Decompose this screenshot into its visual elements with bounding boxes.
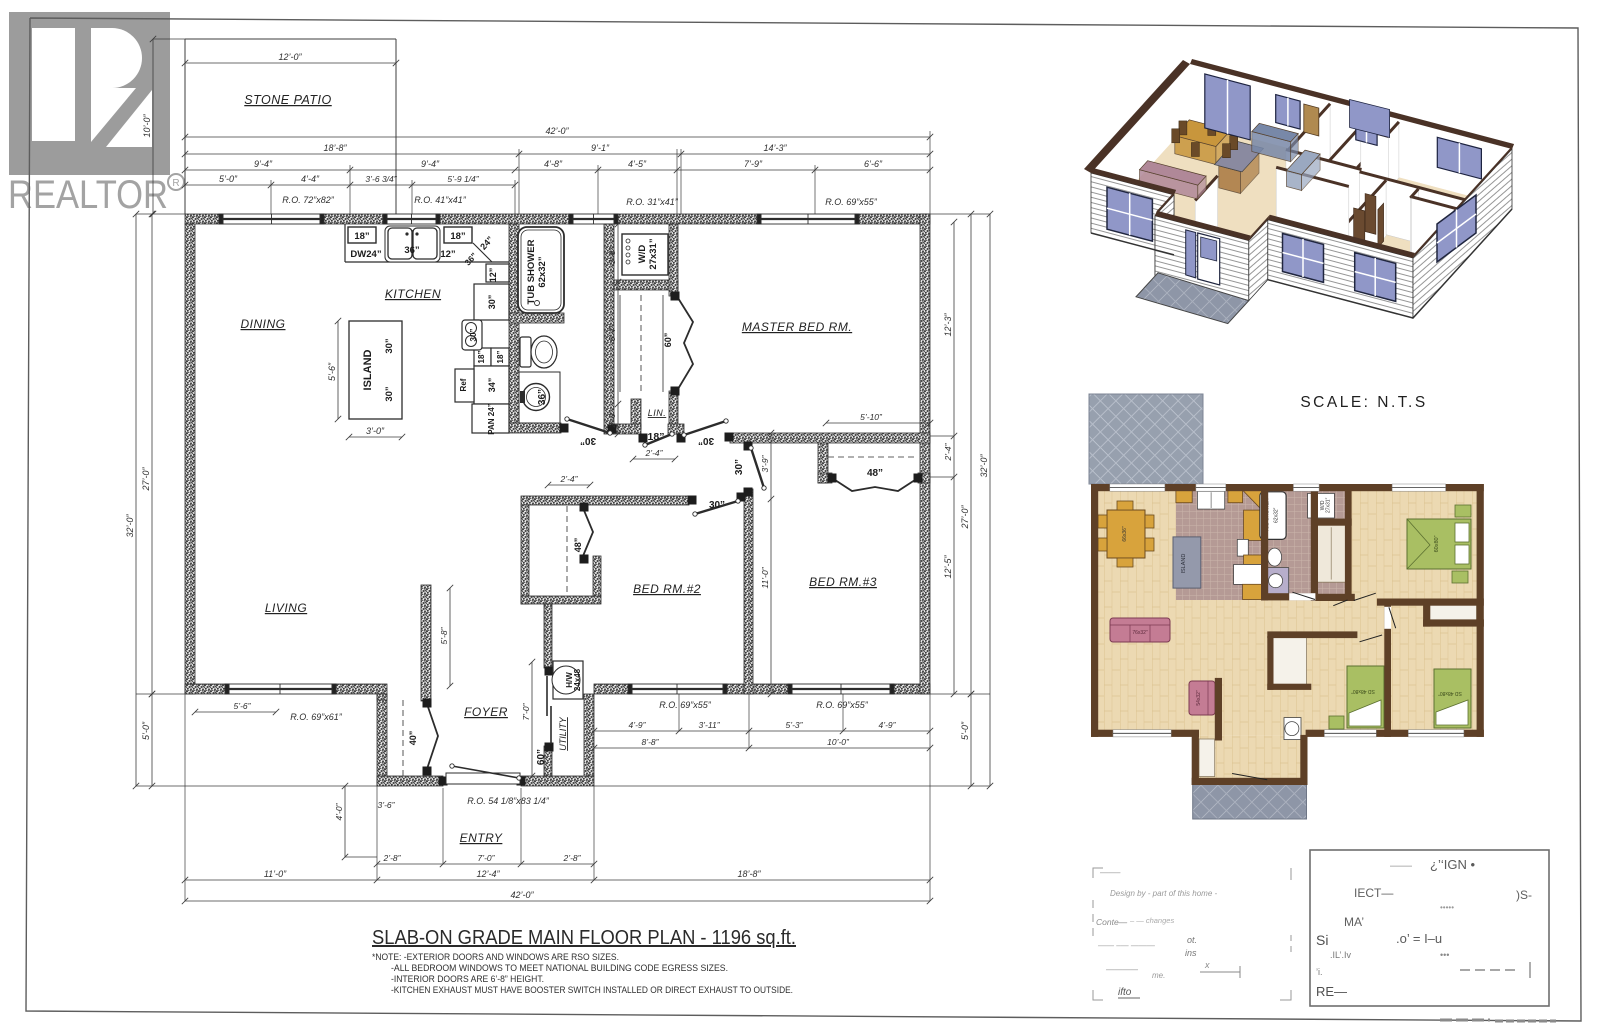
svg-text:¿’‘IGN •: ¿’‘IGN • (1430, 857, 1475, 872)
svg-text:76x32”: 76x32” (1132, 630, 1148, 636)
svg-text:42’-0”: 42’-0” (510, 890, 534, 900)
svg-text:4’-5”: 4’-5” (628, 159, 647, 169)
svg-text:27x31”: 27x31” (648, 238, 659, 269)
svg-text:12’-5”: 12’-5” (943, 554, 953, 578)
svg-text:*NOTE: -EXTERIOR DOORS AND WIN: *NOTE: -EXTERIOR DOORS AND WINDOWS ARE R… (372, 952, 619, 963)
svg-text:5’-9 1/4”: 5’-9 1/4” (447, 174, 479, 184)
svg-text:12”: 12” (488, 268, 498, 283)
svg-text:54x32”: 54x32” (1196, 690, 1202, 706)
svg-text:30”: 30” (469, 329, 478, 342)
svg-text:5’-3”: 5’-3” (785, 720, 803, 730)
svg-text:– — changes: – — changes (1129, 916, 1174, 925)
svg-text:3’-9”: 3’-9” (760, 454, 770, 472)
svg-text:36”: 36” (404, 245, 420, 256)
svg-text:30”: 30” (580, 435, 596, 446)
svg-text:R.O. 69”x55”: R.O. 69”x55” (659, 700, 712, 710)
svg-text:R.O. 69”x61”: R.O. 69”x61” (290, 712, 343, 722)
svg-text:RE—: RE— (1316, 984, 1347, 999)
svg-text:SCALE: N.T.S: SCALE: N.T.S (1300, 394, 1427, 411)
svg-text:18”: 18” (648, 431, 665, 443)
svg-text:BED RM.#3: BED RM.#3 (809, 575, 877, 589)
svg-text:R.O. 69”x55”: R.O. 69”x55” (816, 700, 869, 710)
svg-text:——–: ——– (1099, 868, 1121, 877)
svg-text:3’-8”: 3’-8” (607, 246, 617, 264)
svg-text:5’-6”: 5’-6” (327, 362, 337, 381)
svg-text:5’-6”: 5’-6” (233, 701, 251, 711)
svg-text:18’-8”: 18’-8” (737, 869, 761, 879)
svg-text:42’-0”: 42’-0” (545, 126, 569, 136)
svg-text:PAN 24”: PAN 24” (487, 403, 496, 434)
svg-text:5’-0”: 5’-0” (141, 721, 151, 740)
svg-text:R.O. 69”x55”: R.O. 69”x55” (825, 197, 878, 207)
svg-text:9’-1”: 9’-1” (591, 143, 610, 153)
svg-text:4’-0”: 4’-0” (334, 802, 344, 820)
svg-text:12’-3”: 12’-3” (943, 312, 953, 336)
svg-text:5’-0”: 5’-0” (219, 174, 238, 184)
svg-text:LIN.: LIN. (648, 408, 667, 418)
svg-text:27x31”: 27x31” (1326, 497, 1332, 513)
svg-text:Sі: Sі (1316, 932, 1328, 948)
svg-text:2’-0”: 2’-0” (607, 409, 617, 428)
svg-text:6’-6”: 6’-6” (864, 159, 883, 169)
svg-text:.o’ = I–u: .o’ = I–u (1396, 931, 1442, 946)
svg-text:30”: 30” (698, 435, 714, 446)
svg-text:DW24”: DW24” (350, 249, 381, 260)
svg-text:30”: 30” (487, 295, 497, 310)
svg-text:2’-4”: 2’-4” (943, 442, 953, 461)
svg-text:32’-0”: 32’-0” (979, 453, 989, 477)
svg-text:8’-8”: 8’-8” (641, 737, 659, 747)
svg-text:LIVING: LIVING (265, 601, 307, 615)
svg-text:3’-11”: 3’-11” (698, 720, 720, 730)
svg-text:5’-0”: 5’-0” (960, 721, 970, 740)
svg-text:18”: 18” (354, 231, 370, 242)
svg-text:30”: 30” (384, 338, 395, 354)
svg-text:4’-9”: 4’-9” (878, 720, 896, 730)
svg-text:10’-0”: 10’-0” (827, 737, 850, 747)
svg-text:’і.: ’і. (1316, 967, 1323, 977)
svg-text:48”: 48” (573, 538, 583, 553)
svg-text:-INTERIOR DOORS ARE 6’-8” HEIG: -INTERIOR DOORS ARE 6’-8” HEIGHT. (391, 974, 544, 985)
svg-text:3’-6”: 3’-6” (377, 800, 395, 810)
svg-text:66x36”: 66x36” (1122, 526, 1128, 542)
svg-text:60x80”: 60x80” (1434, 535, 1440, 552)
svg-text:——: —— (1390, 860, 1412, 872)
svg-text:MASTER BED RM.: MASTER BED RM. (742, 320, 852, 334)
svg-text:3’-6 3/4”: 3’-6 3/4” (365, 174, 397, 184)
svg-text:-ALL BEDROOM WINDOWS TO MEET N: -ALL BEDROOM WINDOWS TO MEET NATIONAL BU… (391, 963, 728, 974)
svg-text:x: x (1204, 960, 1210, 970)
svg-text:4’-8”: 4’-8” (544, 159, 563, 169)
svg-text:STONE PATIO: STONE PATIO (244, 93, 331, 107)
svg-text:30”: 30” (709, 500, 725, 511)
svg-text:30”: 30” (734, 459, 745, 475)
svg-text:Conte—: Conte— (1096, 917, 1128, 927)
svg-text:34”: 34” (487, 378, 497, 393)
svg-text:11’-0”: 11’-0” (760, 566, 770, 588)
svg-text:R.O. 41”x41”: R.O. 41”x41” (414, 195, 467, 205)
svg-text:R: R (172, 178, 179, 189)
svg-text:ISLAND: ISLAND (362, 349, 374, 390)
svg-text:36”: 36” (537, 389, 548, 405)
svg-text:60”: 60” (536, 749, 547, 765)
svg-text:5’-8”: 5’-8” (439, 626, 449, 644)
svg-text:12’-4”: 12’-4” (476, 869, 500, 879)
svg-text:27’-0”: 27’-0” (960, 504, 970, 529)
svg-text:4’-9”: 4’-9” (628, 720, 646, 730)
svg-text:32’-0”: 32’-0” (125, 513, 135, 537)
svg-text:4’-4”: 4’-4” (301, 174, 320, 184)
svg-text:DINING: DINING (241, 317, 286, 331)
svg-text:IECT—: IECT— (1354, 886, 1393, 900)
svg-text:18”: 18” (496, 351, 505, 364)
svg-text:9’-4”: 9’-4” (254, 159, 273, 169)
svg-text:2’-8”: 2’-8” (382, 853, 401, 863)
svg-text:FOYER: FOYER (464, 705, 508, 719)
svg-text:)S-: )S- (1516, 888, 1532, 902)
svg-text:3’-0”: 3’-0” (366, 426, 385, 436)
svg-text:SD 48x80”: SD 48x80” (1438, 690, 1462, 696)
svg-text:ifto: ifto (1118, 987, 1132, 998)
svg-text:2’-4”: 2’-4” (559, 474, 578, 484)
svg-text:MА’: MА’ (1344, 915, 1364, 929)
svg-text:5’-10”: 5’-10” (860, 412, 883, 422)
svg-text:Ref: Ref (459, 378, 468, 391)
svg-text:2’-8”: 2’-8” (562, 853, 581, 863)
svg-text:ins: ins (1185, 948, 1197, 958)
svg-text:SD 48x80”: SD 48x80” (1351, 688, 1375, 694)
svg-text:R.O. 72”x82”: R.O. 72”x82” (282, 195, 335, 205)
svg-text:ISLAND: ISLAND (1181, 554, 1187, 574)
svg-text:11’-0”: 11’-0” (264, 869, 287, 879)
svg-text:TUB SHOWER: TUB SHOWER (526, 239, 537, 304)
svg-text:30”: 30” (384, 386, 395, 402)
svg-text:18”: 18” (477, 351, 486, 364)
svg-text:62x32”: 62x32” (537, 256, 548, 287)
svg-text:ENTRY: ENTRY (460, 831, 503, 845)
svg-text:UTILITY: UTILITY (558, 716, 568, 751)
svg-text:SLAB-ON GRADE MAIN FLOOR PLAN: SLAB-ON GRADE MAIN FLOOR PLAN - 1196 sq.… (372, 927, 796, 949)
svg-text:•••: ••• (1440, 950, 1449, 960)
svg-text:60”: 60” (663, 333, 673, 348)
svg-text:me.: me. (1152, 971, 1165, 980)
svg-text:48”: 48” (867, 468, 883, 479)
svg-text:12’-0”: 12’-0” (278, 52, 302, 62)
svg-text:—— –— ———: —— –— ——— (1097, 941, 1156, 950)
svg-text:Design by - part of this home: Design by - part of this home - (1110, 889, 1217, 898)
svg-text:-KITCHEN EXHAUST MUST HAVE BOO: -KITCHEN EXHAUST MUST HAVE BOOSTER SWITC… (391, 985, 793, 996)
svg-text:18”: 18” (450, 231, 466, 242)
svg-text:7’-0”: 7’-0” (477, 853, 495, 863)
svg-text:18’-8”: 18’-8” (323, 143, 347, 153)
svg-text:24x48: 24x48 (573, 668, 582, 691)
svg-text:40”: 40” (408, 731, 418, 746)
svg-text:14’-3”: 14’-3” (763, 143, 787, 153)
svg-text:W/D: W/D (637, 245, 648, 264)
svg-text:7’-9”: 7’-9” (744, 159, 763, 169)
svg-text:2’-4”: 2’-4” (644, 448, 663, 458)
svg-text:•••••: ••••• (1440, 903, 1454, 912)
svg-text:62x32”: 62x32” (1274, 507, 1280, 523)
svg-text:7’-0”: 7’-0” (521, 702, 531, 720)
svg-text:12”: 12” (440, 249, 456, 260)
svg-text:R.O. 54 1/8”x83 1/4”: R.O. 54 1/8”x83 1/4” (467, 796, 550, 806)
svg-text:BED RM.#2: BED RM.#2 (633, 582, 701, 596)
svg-text:————: ———— (1105, 965, 1139, 974)
svg-text:.ІL’.Іv: .ІL’.Іv (1330, 950, 1352, 960)
svg-text:6’-7”: 6’-7” (607, 323, 617, 341)
svg-text:KITCHEN: KITCHEN (385, 287, 441, 301)
svg-text:9’-4”: 9’-4” (421, 159, 440, 169)
svg-text:R.O. 31”x41”: R.O. 31”x41” (626, 197, 679, 207)
svg-text:ot.: ot. (1187, 935, 1197, 945)
svg-text:10’-0”: 10’-0” (142, 113, 152, 137)
svg-text:REALTOR: REALTOR (8, 173, 168, 217)
svg-text:27’-0”: 27’-0” (141, 466, 151, 491)
